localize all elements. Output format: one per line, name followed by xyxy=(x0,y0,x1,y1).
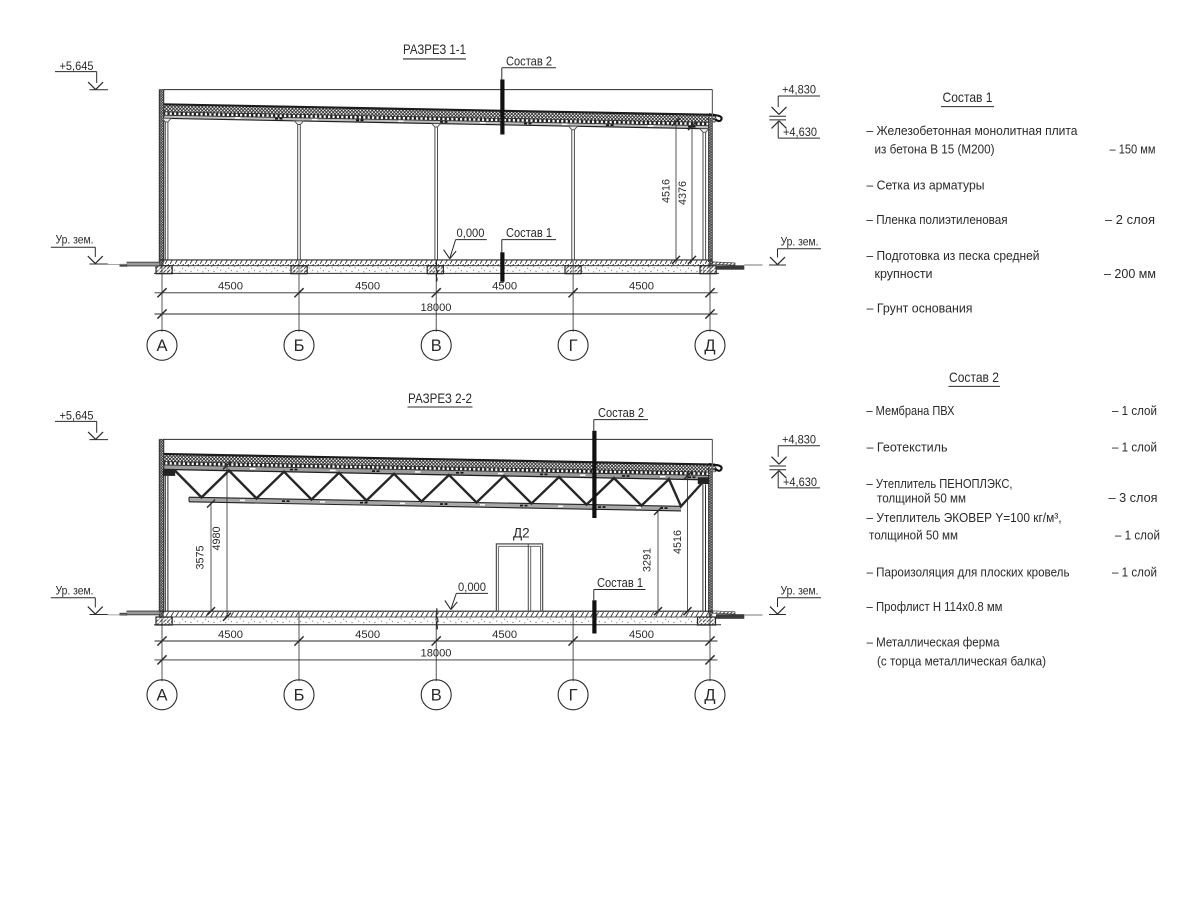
svg-text:Ур. зем.: Ур. зем. xyxy=(56,585,94,597)
svg-text:– 1 слой: – 1 слой xyxy=(1112,403,1157,418)
svg-text:Д: Д xyxy=(704,687,715,705)
svg-text:Г: Г xyxy=(569,687,578,705)
svg-text:– 2 слоя: – 2 слоя xyxy=(1105,212,1155,227)
svg-text:– 3 слоя: – 3 слоя xyxy=(1109,490,1158,505)
svg-text:– Подготовка из песка средней: – Подготовка из песка средней xyxy=(867,248,1040,263)
svg-text:+4,630: +4,630 xyxy=(783,127,817,139)
svg-text:Состав 1: Состав 1 xyxy=(943,89,993,105)
svg-text:В: В xyxy=(431,337,442,355)
svg-text:– Геотекстиль: – Геотекстиль xyxy=(867,439,948,454)
svg-text:+5,645: +5,645 xyxy=(60,61,94,73)
svg-text:3291: 3291 xyxy=(642,548,654,572)
svg-text:Состав 2: Состав 2 xyxy=(949,369,999,385)
svg-text:4376: 4376 xyxy=(677,181,689,205)
svg-text:4980: 4980 xyxy=(211,527,223,551)
svg-text:– Пленка полиэтиленовая: – Пленка полиэтиленовая xyxy=(867,212,1008,227)
svg-text:4500: 4500 xyxy=(492,629,517,641)
svg-text:0,000: 0,000 xyxy=(458,582,486,594)
svg-text:4500: 4500 xyxy=(218,281,243,293)
svg-text:– Сетка из арматуры: – Сетка из арматуры xyxy=(867,177,985,192)
svg-text:А: А xyxy=(156,337,167,355)
svg-text:+4,630: +4,630 xyxy=(783,477,817,489)
svg-text:– Утеплитель ПЕНОПЛЭКС,: – Утеплитель ПЕНОПЛЭКС, xyxy=(867,476,1013,491)
svg-text:Д: Д xyxy=(704,337,715,355)
svg-text:крупности: крупности xyxy=(875,266,933,281)
svg-text:4500: 4500 xyxy=(218,629,243,641)
svg-text:Б: Б xyxy=(294,337,305,355)
svg-text:Состав 2: Состав 2 xyxy=(598,406,644,420)
svg-text:– 1 слой: – 1 слой xyxy=(1115,528,1160,543)
svg-text:4500: 4500 xyxy=(492,281,517,293)
svg-text:0,000: 0,000 xyxy=(457,228,485,240)
svg-text:Д2: Д2 xyxy=(513,526,530,541)
svg-text:Состав 1: Состав 1 xyxy=(597,576,643,590)
svg-text:4500: 4500 xyxy=(355,629,380,641)
svg-text:– Железобетонная монолитная п: – Железобетонная монолитная плита xyxy=(867,123,1079,138)
svg-text:+4,830: +4,830 xyxy=(782,85,816,97)
svg-text:+5,645: +5,645 xyxy=(60,411,94,423)
svg-text:– Пароизоляция для плоских кро: – Пароизоляция для плоских кровель xyxy=(867,564,1070,579)
svg-text:Г: Г xyxy=(569,337,578,355)
svg-text:А: А xyxy=(156,687,167,705)
svg-text:РАЗРЕЗ 1-1: РАЗРЕЗ 1-1 xyxy=(403,41,466,57)
svg-text:– 1 слой: – 1 слой xyxy=(1112,564,1157,579)
svg-text:– Профлист Н 114х0.8 мм: – Профлист Н 114х0.8 мм xyxy=(867,599,1003,614)
svg-text:Ур. зем.: Ур. зем. xyxy=(781,585,819,597)
svg-text:4516: 4516 xyxy=(661,179,673,203)
svg-text:– Металлическая ферма: – Металлическая ферма xyxy=(867,634,1001,649)
svg-text:толщиной 50 мм: толщиной 50 мм xyxy=(869,528,958,543)
svg-text:из бетона В 15 (М200): из бетона В 15 (М200) xyxy=(875,141,995,156)
svg-text:В: В xyxy=(431,687,442,705)
svg-text:– 1 слой: – 1 слой xyxy=(1112,439,1157,454)
svg-text:– 150 мм: – 150 мм xyxy=(1110,141,1156,156)
svg-text:4500: 4500 xyxy=(629,281,654,293)
svg-text:– Грунт основания: – Грунт основания xyxy=(867,300,973,315)
svg-text:Ур. зем.: Ур. зем. xyxy=(56,235,94,247)
svg-text:4516: 4516 xyxy=(672,530,684,554)
svg-text:РАЗРЕЗ 2-2: РАЗРЕЗ 2-2 xyxy=(408,390,472,406)
svg-text:4500: 4500 xyxy=(629,629,654,641)
svg-text:Состав 1: Состав 1 xyxy=(506,226,552,240)
svg-text:3575: 3575 xyxy=(195,546,207,570)
svg-text:Состав 2: Состав 2 xyxy=(506,54,552,68)
svg-text:Ур. зем.: Ур. зем. xyxy=(781,237,819,249)
svg-text:+4,830: +4,830 xyxy=(782,434,816,446)
svg-text:– Мембрана ПВХ: – Мембрана ПВХ xyxy=(867,403,955,418)
svg-text:4500: 4500 xyxy=(355,281,380,293)
svg-text:– Утеплитель ЭКОВЕР Y=100 кг/м: – Утеплитель ЭКОВЕР Y=100 кг/м³, xyxy=(867,510,1062,525)
svg-text:Б: Б xyxy=(294,687,305,705)
svg-text:толщиной 50 мм: толщиной 50 мм xyxy=(877,490,966,505)
svg-text:– 200 мм: – 200 мм xyxy=(1104,266,1156,281)
svg-text:(с торца металлическая балка): (с торца металлическая балка) xyxy=(877,653,1046,668)
